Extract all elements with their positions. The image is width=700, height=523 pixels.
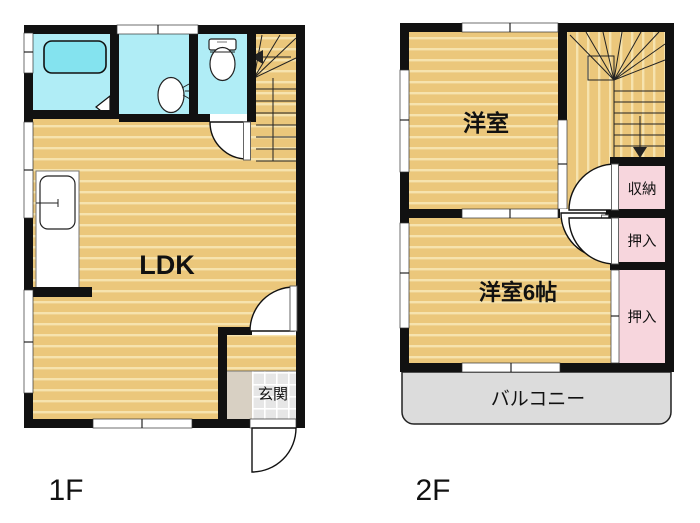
balcony-label: バルコニー bbox=[491, 389, 586, 410]
window bbox=[400, 223, 409, 328]
room-label-yoshitsu: 洋室 bbox=[463, 110, 509, 136]
room-label-yoshitsu6: 洋室6帖 bbox=[479, 280, 557, 305]
floor-label-1f: 1F bbox=[48, 474, 83, 507]
room-label-genkan: 玄関 bbox=[258, 386, 288, 403]
floorplan-image: LDK 玄関 1F bbox=[0, 0, 700, 523]
toilet-icon bbox=[209, 39, 236, 81]
room-label-ldk: LDK bbox=[139, 250, 195, 280]
room-label-shuno: 収納 bbox=[628, 181, 657, 198]
floor-2f-plan: 洋室 洋室6帖 収納 押入 押入 バルコニー 2F bbox=[400, 23, 674, 507]
window bbox=[400, 70, 409, 172]
genkan-step bbox=[227, 371, 252, 419]
bathtub-icon bbox=[44, 41, 106, 73]
floor-label-2f: 2F bbox=[415, 474, 450, 507]
window bbox=[24, 33, 33, 73]
room-washroom bbox=[119, 34, 198, 122]
room-label-oshiire-lower: 押入 bbox=[628, 309, 657, 326]
front-door bbox=[250, 419, 296, 472]
floor-1f-plan: LDK 玄関 1F bbox=[24, 25, 305, 507]
stairs-2f-floor bbox=[567, 32, 665, 162]
door-swing-arc bbox=[252, 428, 296, 472]
room-label-oshiire-upper: 押入 bbox=[628, 233, 657, 250]
kitchen-counter bbox=[36, 171, 79, 290]
